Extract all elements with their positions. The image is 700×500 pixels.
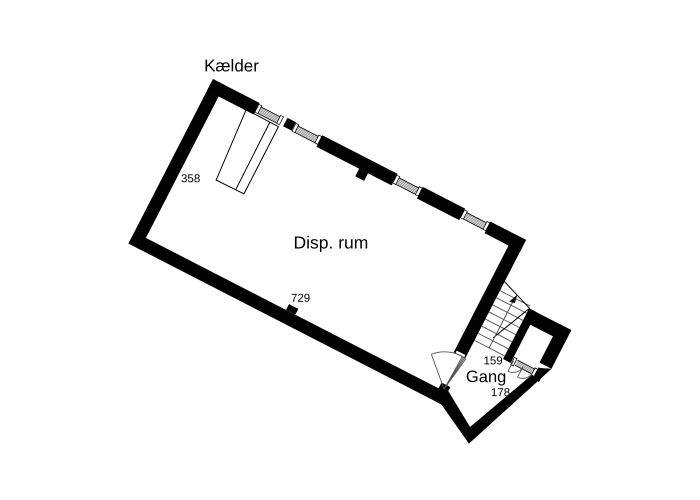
svg-text:159: 159 [483,355,502,367]
svg-text:729: 729 [291,293,310,305]
svg-text:358: 358 [181,173,200,185]
svg-text:Disp. rum: Disp. rum [293,232,368,252]
svg-text:Gang: Gang [466,368,506,386]
svg-text:Kælder: Kælder [204,56,259,75]
svg-text:178: 178 [491,387,510,399]
